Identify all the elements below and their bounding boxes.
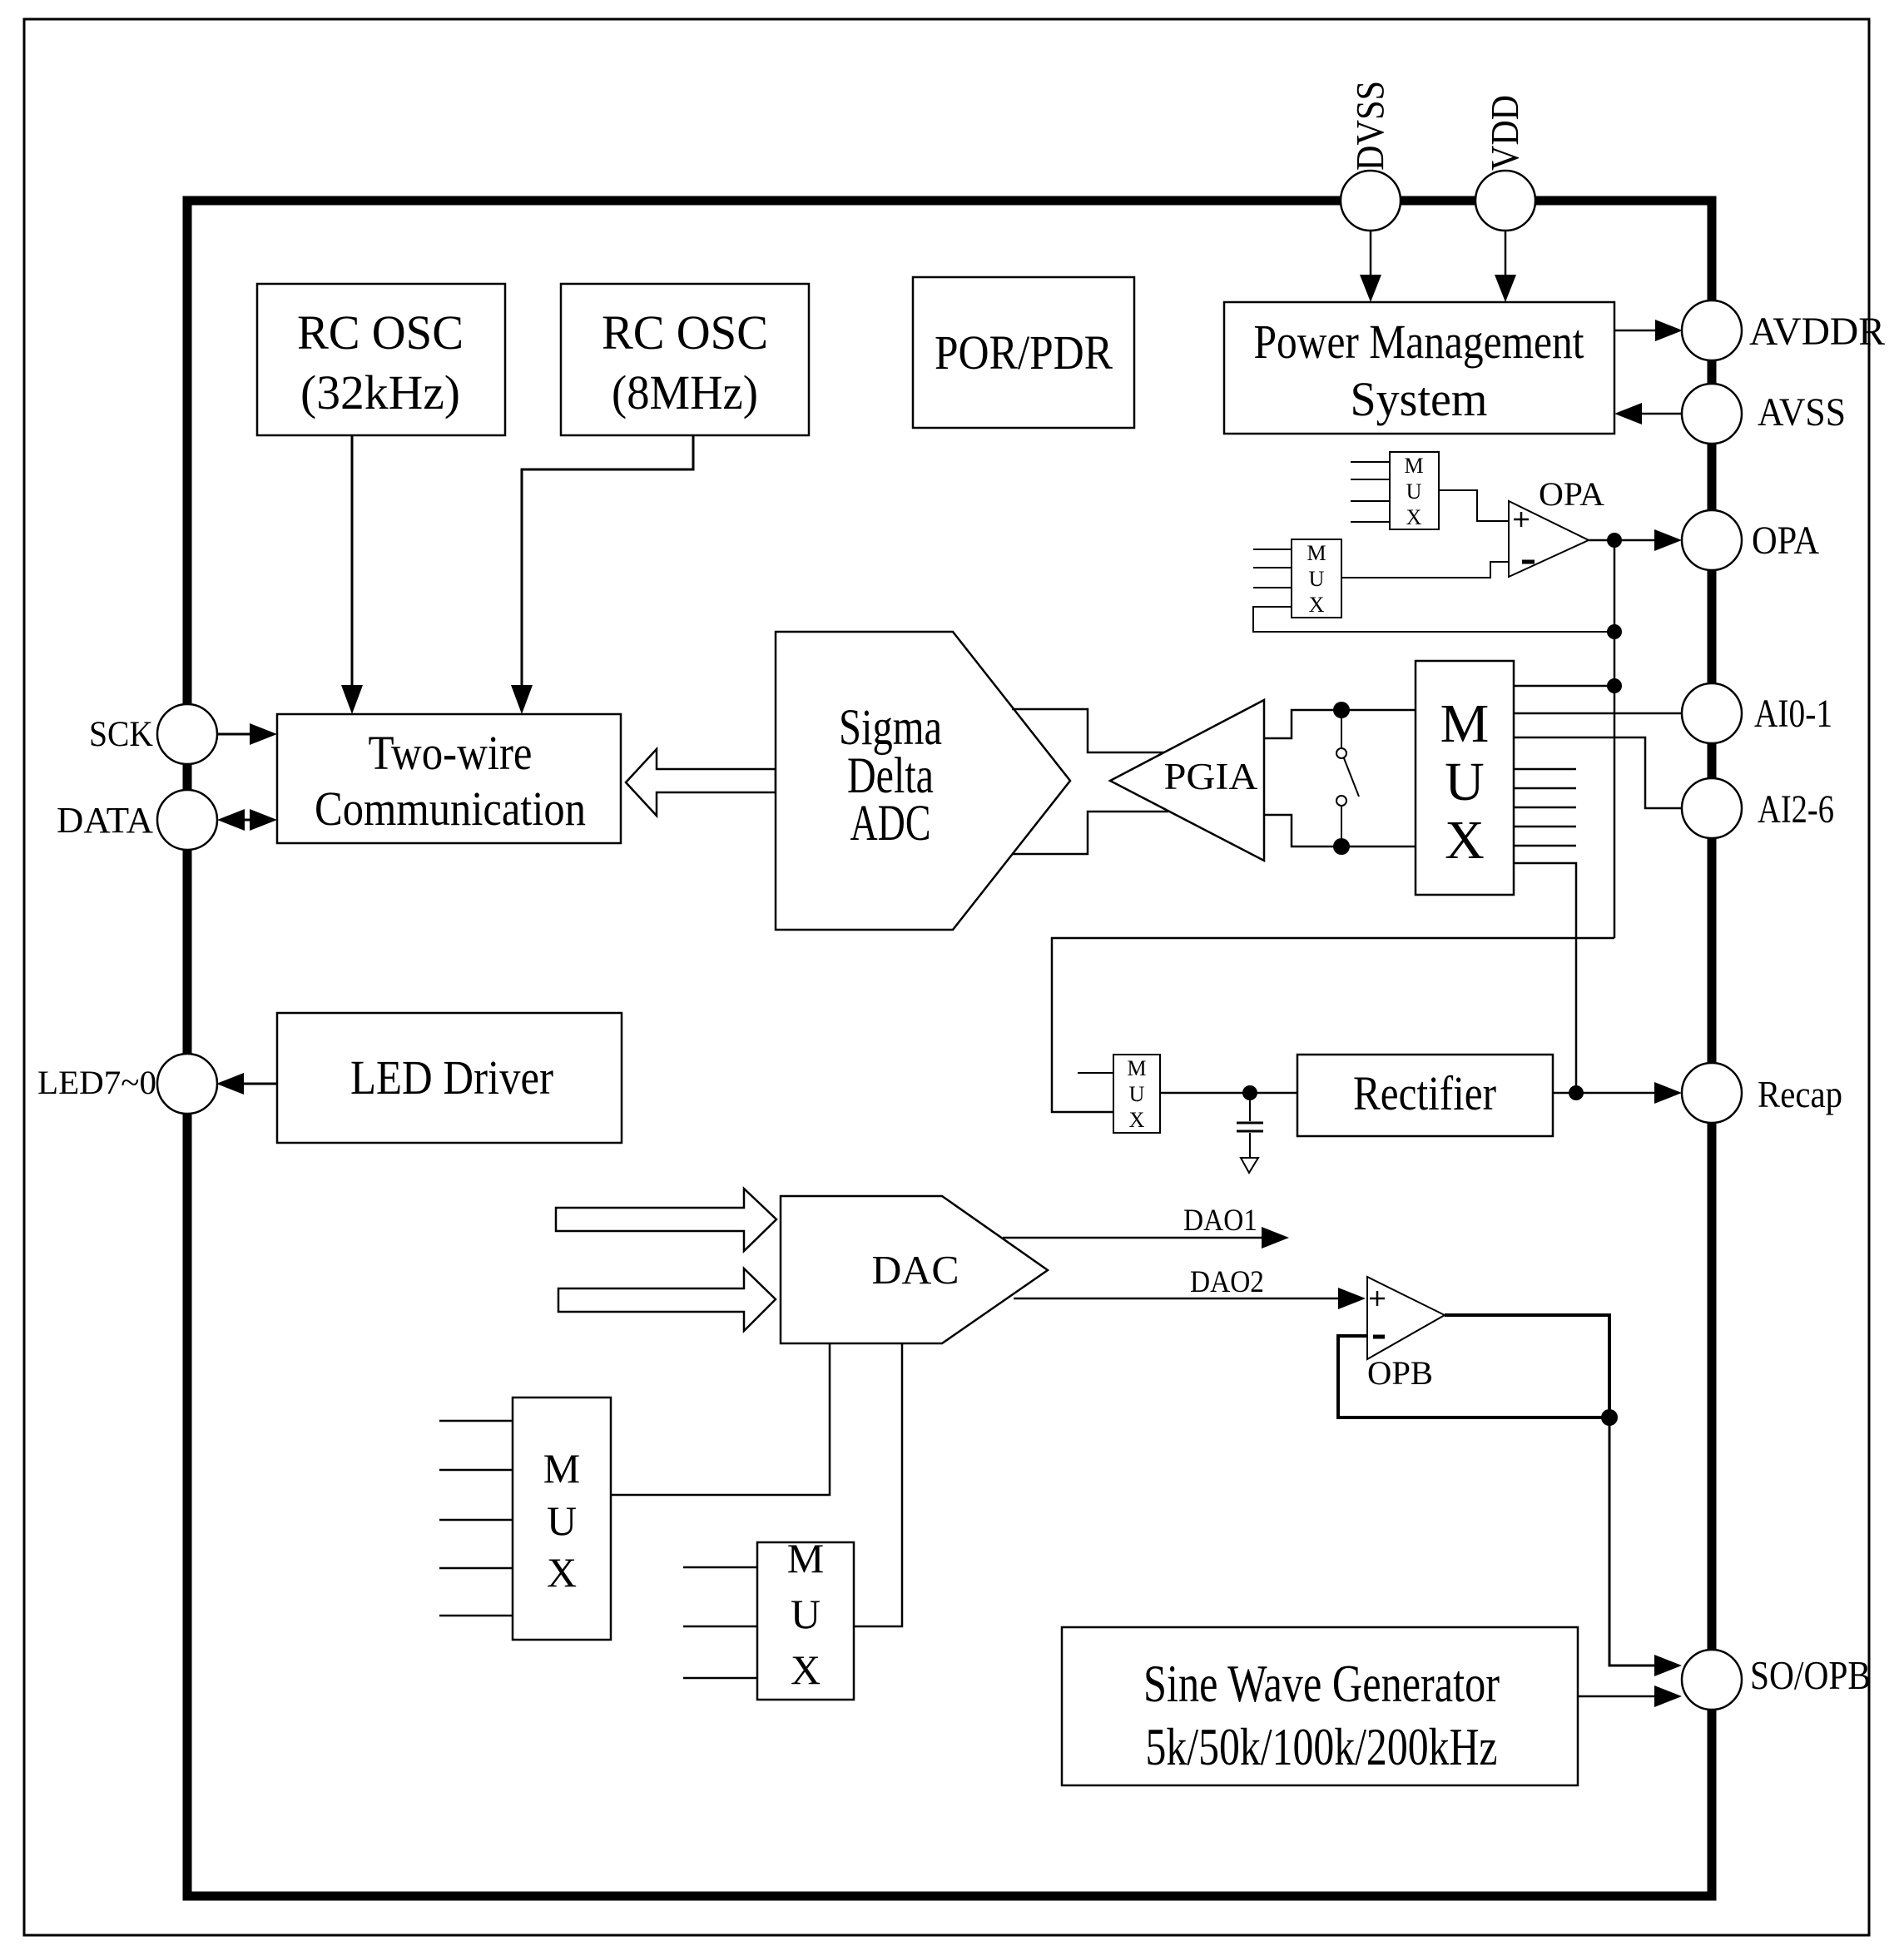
svg-text:AI2-6: AI2-6: [1758, 787, 1834, 832]
svg-text:M: M: [1440, 693, 1490, 754]
svg-text:U: U: [791, 1591, 821, 1637]
svg-text:Recap: Recap: [1758, 1073, 1842, 1115]
svg-text:DATA: DATA: [57, 800, 153, 841]
svg-text:SO/OPB: SO/OPB: [1750, 1652, 1871, 1698]
svg-text:Rectifier: Rectifier: [1353, 1066, 1496, 1120]
svg-text:DVSS: DVSS: [1349, 81, 1393, 171]
svg-text:LED7~0: LED7~0: [37, 1064, 156, 1101]
svg-text:X: X: [1406, 505, 1422, 529]
svg-text:U: U: [1129, 1082, 1145, 1106]
svg-text:M: M: [1127, 1056, 1146, 1080]
svg-text:AVDDR: AVDDR: [1749, 310, 1885, 354]
svg-text:U: U: [1406, 479, 1422, 504]
svg-text:Sine Wave Generator: Sine Wave Generator: [1143, 1654, 1500, 1713]
svg-text:PGIA: PGIA: [1164, 756, 1259, 797]
svg-text:DAC: DAC: [872, 1247, 959, 1293]
svg-text:POR/PDR: POR/PDR: [935, 325, 1113, 380]
svg-text:VDD: VDD: [1484, 95, 1528, 171]
svg-text:X: X: [547, 1549, 577, 1596]
svg-text:M: M: [543, 1445, 580, 1492]
svg-text:X: X: [1129, 1108, 1145, 1132]
svg-text:X: X: [1309, 593, 1325, 617]
svg-text:M: M: [1404, 454, 1423, 478]
svg-text:Two-wire: Two-wire: [369, 726, 533, 780]
svg-text:LED Driver: LED Driver: [350, 1050, 553, 1105]
svg-text:(8MHz): (8MHz): [612, 365, 758, 419]
svg-text:M: M: [787, 1535, 824, 1581]
svg-text:AI0-1: AI0-1: [1754, 692, 1832, 736]
svg-text:ADC: ADC: [850, 796, 931, 851]
svg-text:SCK: SCK: [89, 715, 153, 754]
svg-text:U: U: [1309, 567, 1325, 591]
svg-text:M: M: [1307, 541, 1326, 565]
svg-text:U: U: [547, 1497, 577, 1544]
svg-text:U: U: [1445, 752, 1485, 812]
svg-text:OPA: OPA: [1752, 519, 1819, 563]
svg-text:Power Management: Power Management: [1254, 315, 1584, 369]
svg-text:AVSS: AVSS: [1758, 390, 1846, 434]
svg-text:RC OSC: RC OSC: [602, 305, 768, 360]
svg-text:(32kHz): (32kHz): [300, 365, 460, 419]
svg-text:DAO2: DAO2: [1190, 1265, 1264, 1299]
svg-text:X: X: [1445, 810, 1485, 871]
svg-text:5k/50k/100k/200kHz: 5k/50k/100k/200kHz: [1146, 1717, 1498, 1776]
svg-text:X: X: [791, 1646, 821, 1693]
svg-text:System: System: [1351, 372, 1488, 426]
svg-text:Communication: Communication: [315, 782, 586, 836]
svg-text:OPA: OPA: [1539, 475, 1604, 513]
svg-text:Sigma: Sigma: [839, 700, 942, 756]
svg-text:OPB: OPB: [1367, 1354, 1433, 1392]
svg-text:RC OSC: RC OSC: [297, 305, 464, 360]
svg-text:DAO1: DAO1: [1183, 1204, 1257, 1238]
